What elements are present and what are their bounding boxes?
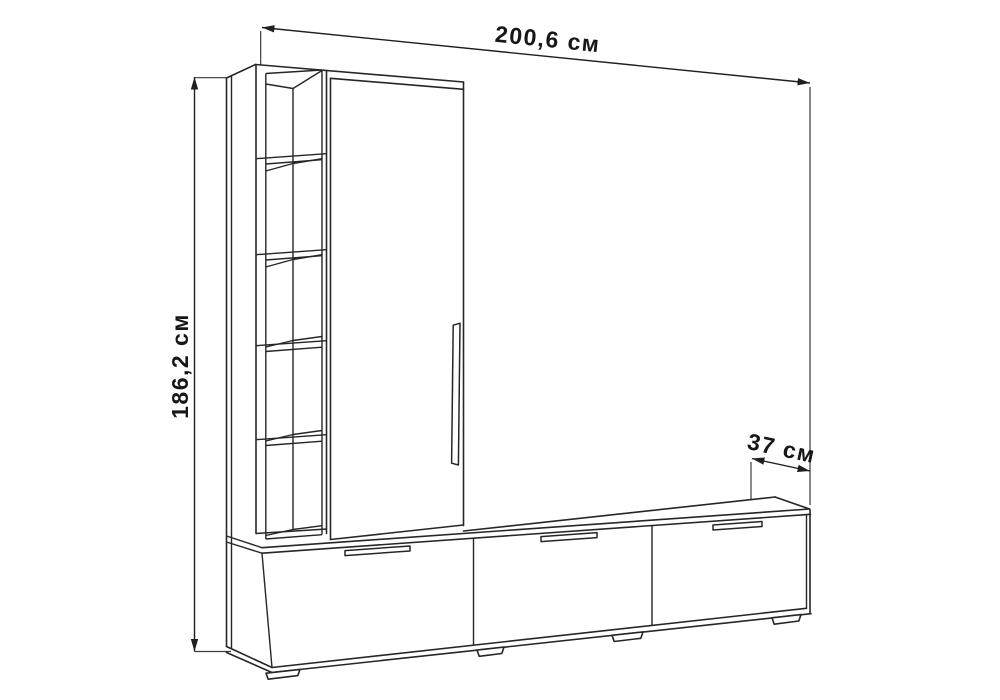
shelf (256, 154, 327, 171)
foot (477, 647, 504, 656)
shelf (256, 337, 327, 352)
height-dimension-label: 186,2 см (167, 313, 193, 419)
diagram-canvas: 200,6 см 186,2 см 37 см (0, 0, 1000, 700)
depth-dimension-label: 37 см (745, 428, 818, 468)
dimension-depth: 37 см (745, 428, 818, 500)
furniture-dimension-diagram: 200,6 см 186,2 см 37 см (0, 0, 1000, 700)
shelf (256, 431, 327, 446)
drawer-handle (345, 546, 410, 556)
drawer-handle (713, 522, 762, 531)
shelf (256, 250, 327, 267)
foot (612, 632, 643, 642)
wardrobe-door (331, 78, 464, 539)
wardrobe-top-edge (256, 65, 464, 83)
shelf-tower-bottom (256, 526, 327, 539)
dimension-width: 200,6 см (261, 21, 810, 505)
dimension-height: 186,2 см (167, 77, 231, 652)
tv-stand-body (227, 510, 812, 673)
foot (772, 615, 801, 625)
drawer-handle (541, 533, 597, 542)
door-handle (452, 323, 460, 465)
width-dimension-label: 200,6 см (494, 21, 602, 58)
foot (266, 669, 300, 679)
tv-stand (227, 497, 812, 679)
shelf-tower (256, 65, 327, 539)
